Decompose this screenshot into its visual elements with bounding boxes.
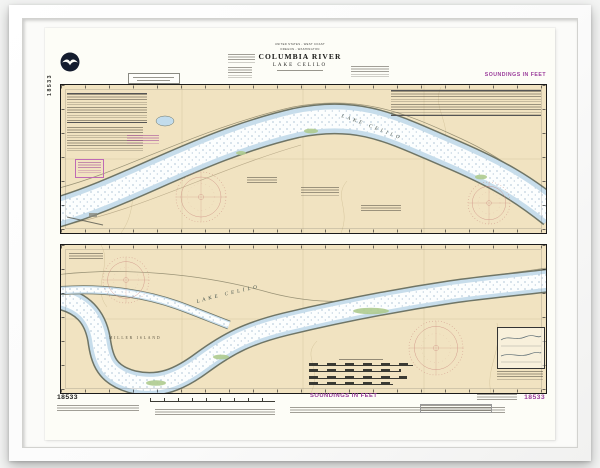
bottom-scale-bar: [150, 398, 275, 402]
soundings-note-top: SOUNDINGS IN FEET: [485, 72, 546, 78]
bottom-left-chart-number: 18533: [57, 394, 78, 401]
illegible-text-block: [351, 66, 389, 78]
chart-paper: 18533 UNITED STATES - WEST COAST OREGON …: [45, 28, 555, 440]
lower-panel-map: LAKE CELILO MILLER ISLAND: [61, 245, 546, 393]
illegible-text-block: [477, 394, 517, 401]
tide-table: [391, 90, 541, 116]
scale-note-line: [277, 70, 323, 71]
magenta-note: [127, 135, 159, 145]
illegible-text-block: [228, 54, 255, 64]
illegible-text-block: [247, 177, 277, 183]
illegible-text-block: [69, 253, 103, 259]
illegible-text-block: [301, 187, 339, 197]
compass-rose: [176, 172, 226, 222]
inset-caption: [497, 371, 543, 381]
illegible-text-block: [228, 67, 252, 79]
island-label: MILLER ISLAND: [109, 336, 161, 340]
scale-bars: [309, 359, 413, 389]
fine-print: [155, 409, 275, 415]
bottom-right-chart-number: 18533: [524, 394, 545, 401]
inset-map-box: [497, 327, 545, 369]
illegible-text-block: [361, 205, 401, 213]
chart-title: COLUMBIA RIVER: [195, 52, 405, 61]
title-region-line: OREGON - WASHINGTON: [211, 47, 390, 50]
clearance-table: [67, 93, 147, 123]
chart-panel-lower: LAKE CELILO MILLER ISLAND: [60, 244, 547, 394]
noaa-logo-icon: [59, 51, 81, 73]
illegible-text-block: [57, 405, 139, 412]
soundings-note-bottom: SOUNDINGS IN FEET: [310, 393, 377, 399]
magenta-note-box: [75, 159, 104, 178]
title-country-line: UNITED STATES - WEST COAST: [211, 42, 390, 45]
compass-rose: [409, 321, 463, 375]
lower-river-label: LAKE CELILO: [195, 284, 261, 305]
framed-chart-photo: 18533 UNITED STATES - WEST COAST OREGON …: [0, 0, 600, 468]
chart-panel-upper: LAKE CELILO: [60, 84, 547, 234]
illegible-text-block: [420, 404, 492, 413]
compass-rose: [468, 182, 510, 224]
svg-text:LAKE CELILO: LAKE CELILO: [195, 284, 261, 305]
top-note-box: [128, 73, 180, 84]
side-chart-number: 18533: [47, 74, 53, 96]
